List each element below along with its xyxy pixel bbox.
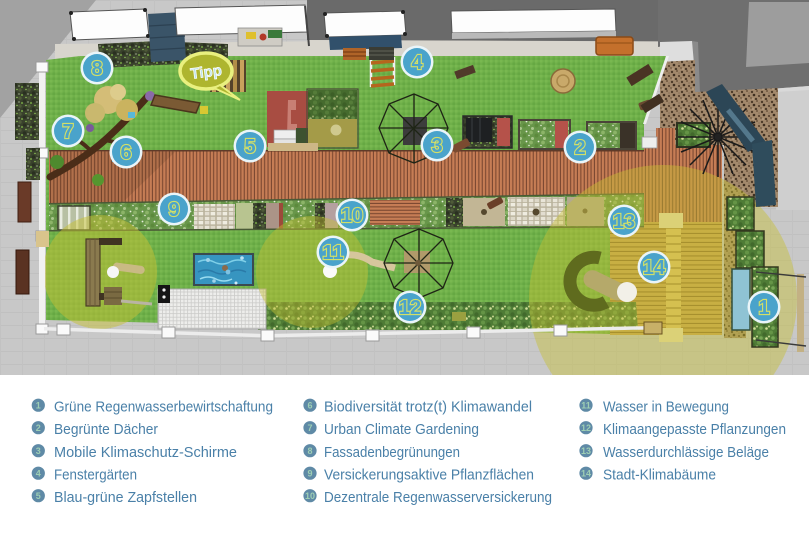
svg-text:9: 9: [307, 468, 312, 478]
svg-text:Begrünte Dächer: Begrünte Dächer: [54, 421, 158, 438]
svg-text:Mobile Klimaschutz-Schirme: Mobile Klimaschutz-Schirme: [54, 444, 237, 461]
svg-text:13: 13: [613, 211, 635, 233]
svg-text:6: 6: [120, 142, 131, 164]
svg-text:2: 2: [574, 137, 585, 159]
svg-text:7: 7: [62, 121, 73, 143]
svg-text:11: 11: [322, 242, 343, 264]
svg-text:2: 2: [36, 423, 41, 433]
svg-text:1: 1: [36, 400, 41, 410]
svg-text:Wasser in Bewegung: Wasser in Bewegung: [603, 399, 729, 416]
svg-text:13: 13: [581, 446, 591, 456]
svg-text:5: 5: [36, 491, 41, 501]
svg-text:Urban Climate Gardening: Urban Climate Gardening: [324, 421, 479, 438]
svg-text:3: 3: [36, 446, 41, 456]
svg-text:Versickerungsaktive Pflanzfläc: Versickerungsaktive Pflanzflächen: [324, 467, 534, 484]
svg-text:4: 4: [36, 468, 41, 478]
svg-text:7: 7: [307, 423, 312, 433]
svg-text:Blau-grüne Zapfstellen: Blau-grüne Zapfstellen: [54, 489, 197, 506]
svg-text:Stadt-Klimabäume: Stadt-Klimabäume: [603, 467, 716, 484]
svg-text:Wasserdurchlässige Beläge: Wasserdurchlässige Beläge: [603, 444, 769, 461]
svg-text:Biodiversität trotz(t) Klimawa: Biodiversität trotz(t) Klimawandel: [324, 399, 532, 416]
svg-text:10: 10: [305, 491, 315, 501]
svg-text:3: 3: [431, 135, 442, 157]
svg-text:Klimaangepasste Pflanzungen: Klimaangepasste Pflanzungen: [603, 421, 786, 438]
svg-text:11: 11: [581, 400, 591, 410]
svg-text:1: 1: [758, 297, 769, 319]
svg-text:8: 8: [91, 58, 102, 80]
svg-text:8: 8: [307, 446, 312, 456]
svg-text:Dezentrale Regenwasserversicke: Dezentrale Regenwasserversickerung: [324, 489, 552, 506]
svg-text:12: 12: [399, 297, 421, 319]
svg-text:4: 4: [411, 52, 423, 74]
svg-text:6: 6: [307, 400, 312, 410]
svg-text:Fassadenbegrünungen: Fassadenbegrünungen: [324, 444, 460, 461]
svg-text:Grüne Regenwasserbewirtschaftu: Grüne Regenwasserbewirtschaftung: [54, 399, 273, 416]
svg-text:9: 9: [168, 199, 179, 221]
svg-text:14: 14: [581, 468, 591, 478]
svg-text:12: 12: [581, 423, 591, 433]
svg-text:Fenstergärten: Fenstergärten: [54, 467, 137, 484]
svg-text:14: 14: [643, 257, 666, 279]
svg-text:5: 5: [244, 136, 255, 158]
svg-text:10: 10: [341, 205, 363, 227]
